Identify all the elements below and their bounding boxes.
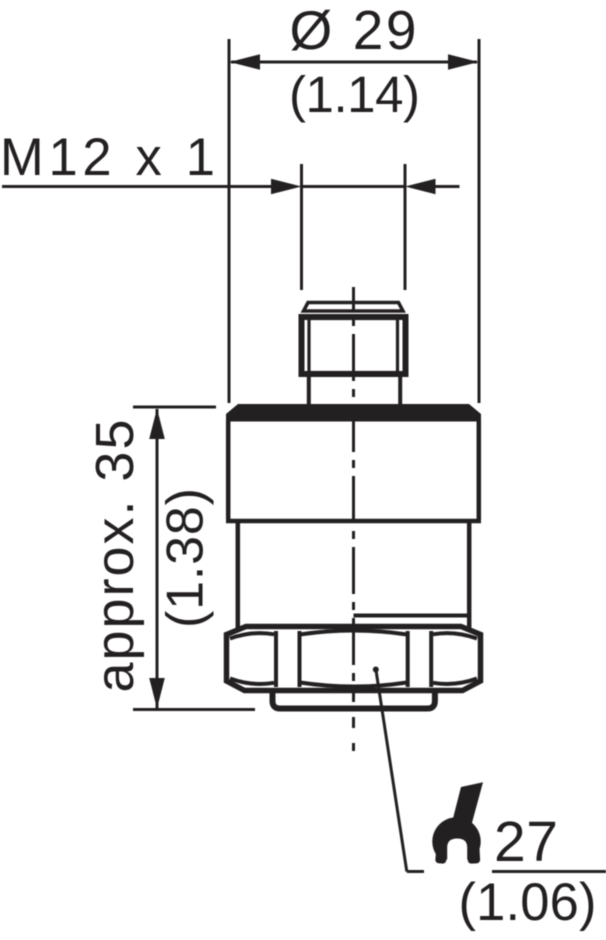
- svg-text:27: 27: [494, 810, 558, 874]
- svg-text:Ø 29: Ø 29: [290, 0, 417, 61]
- svg-text:approx. 35: approx. 35: [85, 420, 145, 693]
- svg-text:(1.14): (1.14): [289, 66, 420, 123]
- svg-text:(1.38): (1.38): [157, 488, 215, 628]
- svg-text:(1.06): (1.06): [459, 873, 597, 932]
